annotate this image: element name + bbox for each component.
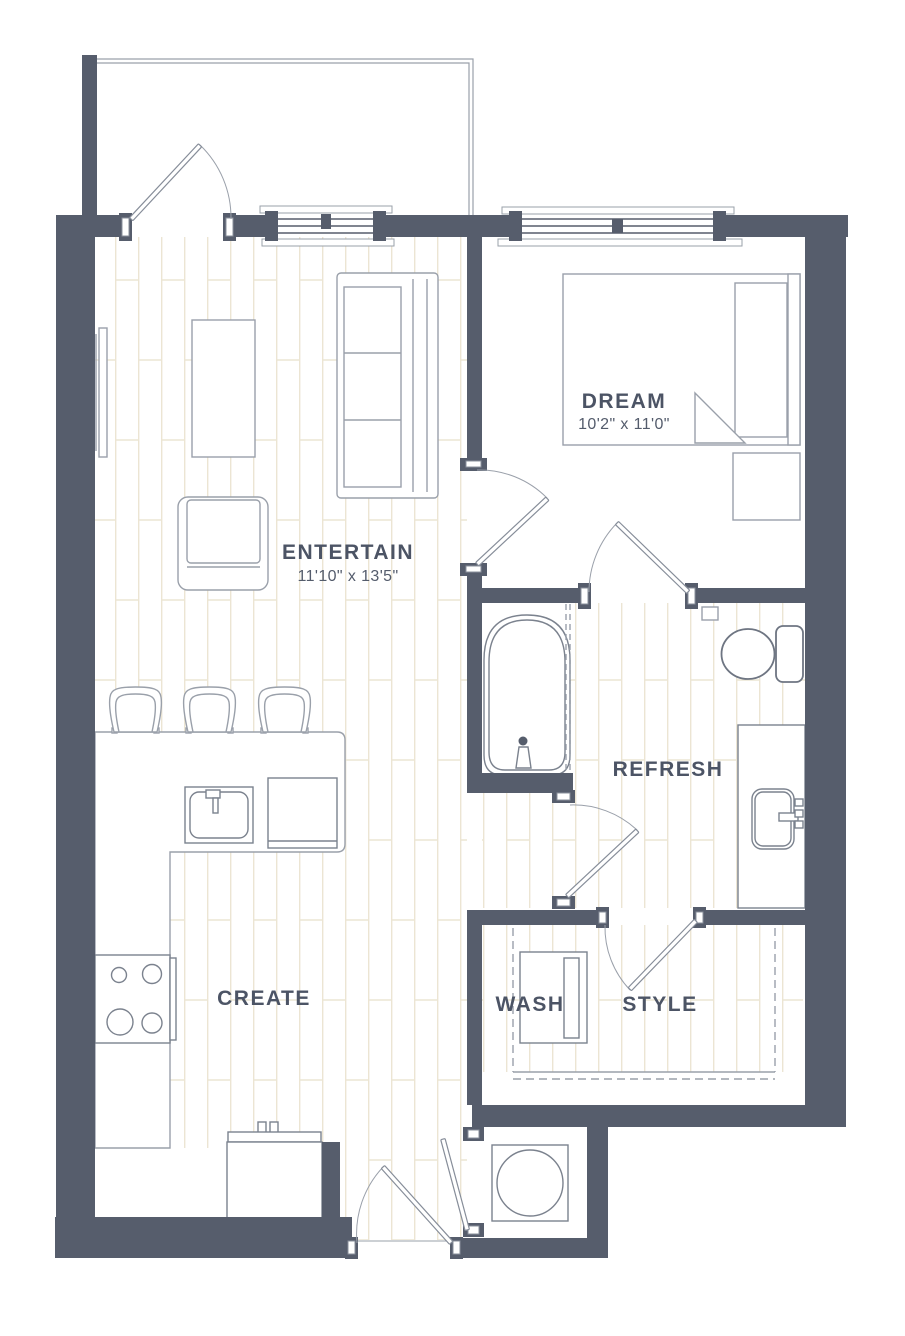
room-dims-dream: 10'2" x 11'0" bbox=[578, 416, 670, 433]
wall bbox=[467, 588, 587, 603]
refrigerator bbox=[227, 1122, 322, 1232]
wall bbox=[467, 237, 482, 468]
shower-control bbox=[702, 607, 718, 620]
bedroom-bath-door bbox=[615, 521, 689, 593]
dishwasher bbox=[268, 778, 337, 848]
room-label-entertain: ENTERTAIN bbox=[282, 541, 414, 564]
sofa bbox=[337, 273, 438, 498]
room-label-wash: WASH bbox=[496, 993, 565, 1016]
room-label-create: CREATE bbox=[217, 987, 311, 1010]
wall bbox=[467, 910, 482, 1105]
tub-faucet bbox=[519, 737, 528, 746]
tub-drain bbox=[516, 747, 531, 768]
coffee-table bbox=[192, 320, 255, 457]
floor-plan: ENTERTAIN 11'10" x 13'5" DREAM 10'2" x 1… bbox=[0, 0, 905, 1336]
balcony-door bbox=[130, 144, 202, 221]
bedroom-door-swing bbox=[477, 470, 547, 498]
bathtub bbox=[484, 615, 570, 775]
wall bbox=[587, 1120, 608, 1258]
closet-shelf-area bbox=[482, 1073, 803, 1105]
bedroom-bath-door-swing bbox=[589, 523, 617, 592]
room-dims-entertain: 11'10" x 13'5" bbox=[297, 568, 398, 585]
bedroom-door bbox=[476, 497, 549, 566]
room-label-style: STYLE bbox=[622, 993, 697, 1016]
armchair bbox=[178, 497, 268, 590]
headboard bbox=[788, 274, 800, 445]
wall bbox=[472, 1105, 846, 1127]
room-label-refresh: REFRESH bbox=[613, 758, 724, 781]
stove bbox=[95, 955, 176, 1043]
bar-stool bbox=[110, 687, 162, 733]
wall bbox=[55, 1217, 352, 1258]
bedroom-window bbox=[498, 207, 742, 246]
wall bbox=[386, 215, 512, 237]
wall bbox=[688, 588, 805, 603]
wall bbox=[322, 1142, 340, 1238]
water-heater bbox=[492, 1145, 568, 1221]
wall bbox=[698, 910, 805, 925]
vanity-sink bbox=[738, 725, 805, 908]
kitchen-sink bbox=[185, 787, 253, 843]
room-label-dream: DREAM bbox=[582, 390, 667, 413]
bar-stool bbox=[259, 687, 311, 733]
living-window bbox=[260, 206, 394, 246]
balcony-wall bbox=[82, 55, 97, 215]
toilet bbox=[722, 626, 804, 682]
wall bbox=[453, 1238, 608, 1258]
wall bbox=[805, 215, 846, 1127]
pillow bbox=[735, 283, 787, 437]
nightstand bbox=[733, 453, 800, 520]
wall bbox=[56, 215, 95, 1258]
balcony-door-swing bbox=[200, 145, 231, 219]
wall bbox=[467, 910, 602, 925]
bar-stool bbox=[184, 687, 236, 733]
